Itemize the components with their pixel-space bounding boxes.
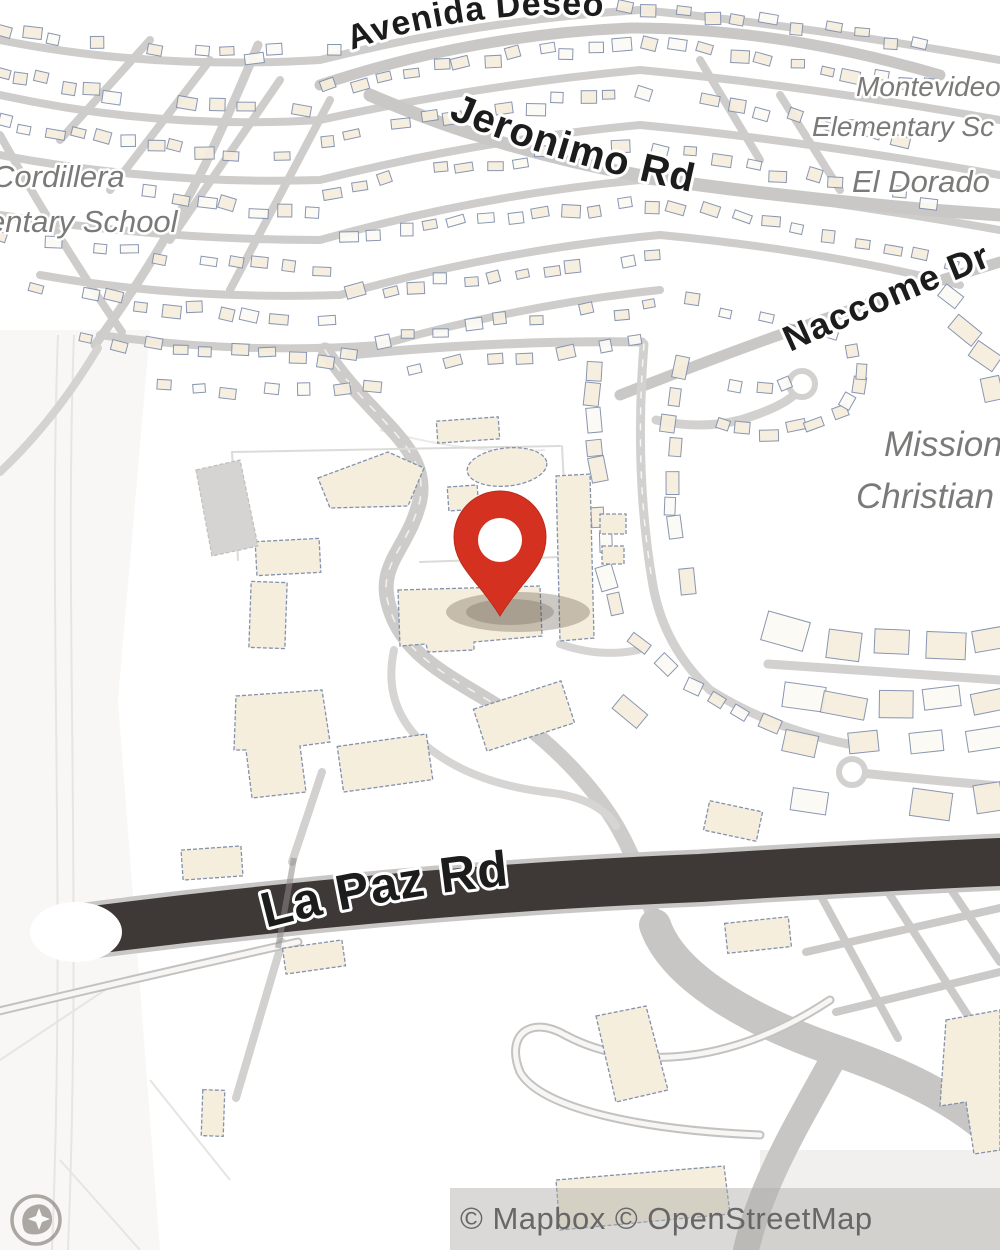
label-el-dorado: El Dorado bbox=[852, 164, 990, 199]
pin-shadow bbox=[446, 592, 590, 632]
attribution-text[interactable]: © Mapbox © OpenStreetMap bbox=[450, 1201, 873, 1237]
label-mission-1: Mission bbox=[884, 425, 1000, 464]
label-cordillera-1: Cordillera bbox=[0, 159, 125, 194]
tunnel-entrance bbox=[30, 902, 122, 962]
pin-hole bbox=[478, 518, 522, 562]
major-road-la-paz bbox=[30, 858, 1000, 962]
label-montevideo-1: Montevideo bbox=[856, 71, 1000, 102]
attribution-bar: © Mapbox © OpenStreetMap bbox=[450, 1188, 1000, 1250]
map-canvas[interactable]: Avenida Deseo Jeronimo Rd Naccome Dr La … bbox=[0, 0, 1000, 1250]
label-cordillera-2: entary School bbox=[0, 204, 179, 239]
mapbox-logo[interactable] bbox=[8, 1192, 64, 1248]
label-montevideo-2: Elementary Sc bbox=[812, 111, 994, 142]
map-svg[interactable]: Avenida Deseo Jeronimo Rd Naccome Dr La … bbox=[0, 0, 1000, 1250]
label-mission-2: Christian bbox=[856, 477, 994, 516]
